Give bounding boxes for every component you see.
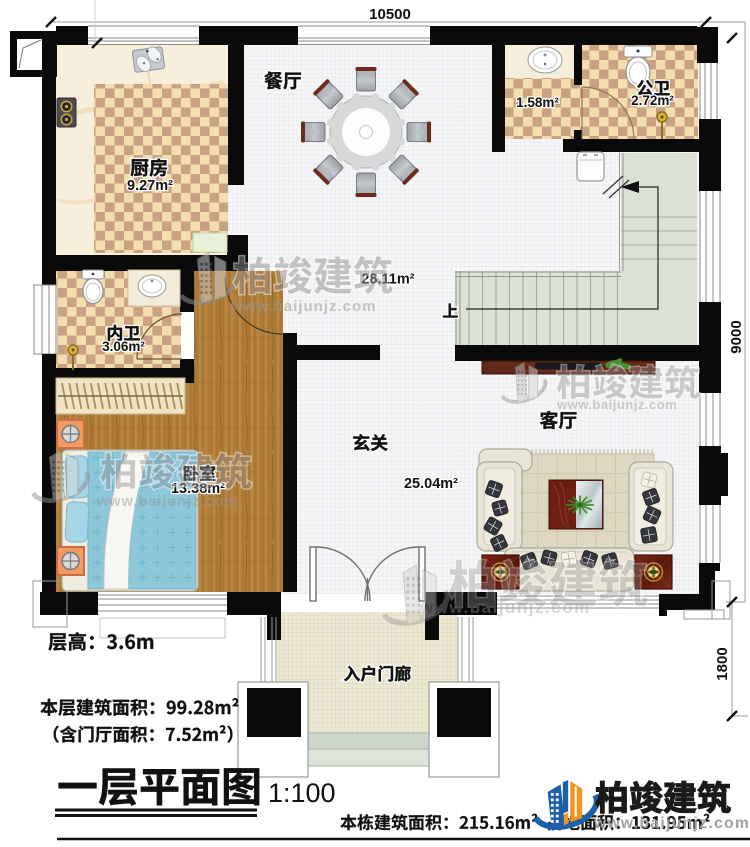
- svg-text:www.baijunjz.com: www.baijunjz.com: [230, 298, 376, 315]
- svg-text:1.58m²: 1.58m²: [516, 95, 559, 110]
- svg-text:1800: 1800: [714, 647, 731, 680]
- svg-text:25.04m²: 25.04m²: [404, 476, 458, 492]
- svg-text:www.baijunjz.com: www.baijunjz.com: [556, 397, 677, 412]
- svg-text:9000: 9000: [728, 320, 745, 353]
- svg-text:www.baijunjz.com: www.baijunjz.com: [419, 598, 591, 617]
- svg-text:10500: 10500: [369, 6, 411, 23]
- svg-text:9.27m²: 9.27m²: [127, 178, 173, 194]
- svg-text:www.baijunjz.com: www.baijunjz.com: [593, 815, 750, 832]
- svg-text:3.06m²: 3.06m²: [102, 339, 145, 354]
- svg-text:www.baijunjz.com: www.baijunjz.com: [96, 494, 238, 510]
- svg-text:2.72m²: 2.72m²: [631, 93, 674, 108]
- svg-text:1:100: 1:100: [268, 778, 336, 808]
